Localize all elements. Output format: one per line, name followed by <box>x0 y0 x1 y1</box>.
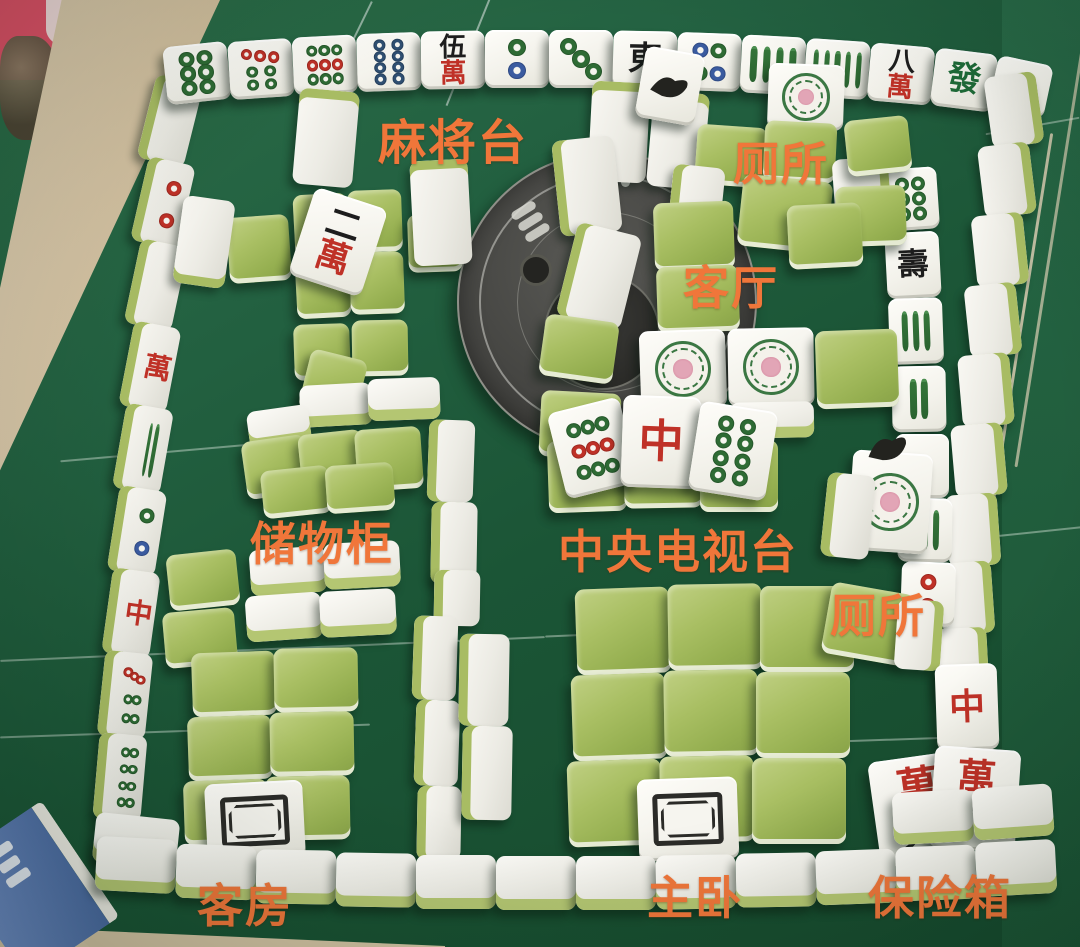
tile-face-glyph: 伍萬 <box>420 30 485 89</box>
mahjong-tile <box>319 588 397 638</box>
mahjong-tile <box>549 30 613 88</box>
tile-face-glyph <box>162 41 232 105</box>
room-label: 客房 <box>197 870 293 936</box>
tile-face-glyph: 八萬 <box>867 42 936 105</box>
mahjong-tile <box>971 783 1054 840</box>
mahjong-tile <box>162 41 232 105</box>
mahjong-tile <box>575 586 672 675</box>
tile-face-glyph <box>109 733 147 821</box>
photo-scene: ENGJINPIN 萬中伍萬東八萬發壽二萬中中萬九萬九 麻将台厕所客厅储物柜中央… <box>0 0 1080 947</box>
mahjong-tile <box>963 281 1022 358</box>
mahjong-tile: 八萬 <box>867 42 936 105</box>
mahjong-tile <box>983 71 1045 150</box>
mahjong-tile <box>727 327 814 406</box>
mahjong-tile: 伍萬 <box>420 30 485 89</box>
mahjong-tile <box>551 135 623 237</box>
tile-face-glyph <box>687 400 778 501</box>
mahjong-tile <box>409 159 472 267</box>
mahjong-tile <box>227 38 295 100</box>
mahjong-tile <box>786 202 863 270</box>
tile-face-glyph <box>123 487 167 577</box>
mahjong-tile <box>496 856 576 910</box>
mahjong-tile <box>576 856 656 910</box>
mahjong-tile <box>165 548 240 611</box>
mahjong-tile <box>667 583 762 671</box>
mahjong-tile <box>950 422 1008 498</box>
room-label: 厕所 <box>830 580 926 646</box>
mahjong-tile <box>92 732 147 822</box>
tile-face-glyph <box>128 405 173 495</box>
tile-face-glyph <box>634 45 706 126</box>
mahjong-tile <box>461 726 513 821</box>
mahjong-tile <box>95 836 178 894</box>
mahjong-tile <box>634 45 706 126</box>
room-label: 厕所 <box>733 128 829 194</box>
mahjong-tile: 萬 <box>118 320 182 414</box>
turntable-button <box>520 254 552 286</box>
mahjong-tile <box>299 382 373 428</box>
mahjong-tile <box>112 402 174 495</box>
mahjong-tile <box>324 462 395 515</box>
mahjong-tile <box>977 141 1037 219</box>
mahjong-tile <box>172 195 236 289</box>
mahjong-tile <box>892 789 975 845</box>
tile-motif <box>860 427 915 466</box>
mahjong-tile <box>336 852 417 907</box>
room-label: 中央电视台 <box>558 516 798 582</box>
mahjong-tile <box>843 115 913 177</box>
mahjong-tile <box>367 377 440 421</box>
room-label: 储物柜 <box>250 508 394 574</box>
mahjong-tile <box>107 485 168 577</box>
room-label: 保险箱 <box>868 862 1012 928</box>
mahjong-tile <box>97 650 154 741</box>
mahjong-tile <box>736 852 817 907</box>
mahjong-tile: 中 <box>935 663 1000 751</box>
mahjong-tile <box>458 634 510 727</box>
mahjong-tile <box>427 419 476 503</box>
mahjong-tile <box>756 672 850 758</box>
tile-face-glyph: 萬 <box>134 323 181 413</box>
mahjong-tile <box>538 313 620 385</box>
mahjong-tile <box>820 472 877 561</box>
mahjong-tile <box>191 651 277 718</box>
tile-face-glyph: 中 <box>117 569 159 658</box>
mahjong-tile <box>752 758 846 844</box>
mahjong-tile <box>485 30 549 88</box>
tile-face-glyph <box>549 30 613 88</box>
mahjong-tile <box>970 211 1029 288</box>
mahjong-tile <box>687 400 778 501</box>
room-label: 麻将台 <box>378 103 528 173</box>
tile-face-glyph <box>227 38 295 100</box>
room-label: 主卧 <box>647 862 743 928</box>
mahjong-tile <box>292 88 360 189</box>
tile-face-glyph <box>113 651 153 740</box>
mahjong-tile <box>356 32 422 92</box>
mahjong-tile <box>273 647 358 712</box>
mahjong-tile <box>244 591 323 642</box>
mahjong-tile <box>292 34 359 95</box>
mahjong-tile <box>571 672 668 761</box>
mahjong-tile <box>957 352 1015 428</box>
tile-face-glyph <box>485 30 549 88</box>
mahjong-tile <box>414 699 461 786</box>
mahjong-tile <box>945 492 1002 567</box>
tile-face-glyph <box>637 776 740 861</box>
mahjong-tile <box>269 711 354 776</box>
mahjong-tile: 中 <box>101 567 161 659</box>
tile-face-glyph <box>292 34 359 95</box>
tile-face-glyph: 中 <box>935 663 1000 751</box>
tile-face-glyph <box>891 366 946 433</box>
mahjong-tile <box>815 329 900 410</box>
mahjong-tile <box>187 715 273 782</box>
mahjong-tile <box>663 669 758 757</box>
mahjong-tile <box>412 615 459 700</box>
tile-face-glyph <box>727 327 814 406</box>
mahjong-tile <box>891 366 946 433</box>
mahjong-tile <box>637 776 740 861</box>
mahjong-tile <box>226 214 292 284</box>
tile-face-glyph <box>356 32 422 92</box>
room-label: 客厅 <box>683 252 779 318</box>
mahjong-tile <box>416 786 461 861</box>
mahjong-tile <box>416 855 496 909</box>
